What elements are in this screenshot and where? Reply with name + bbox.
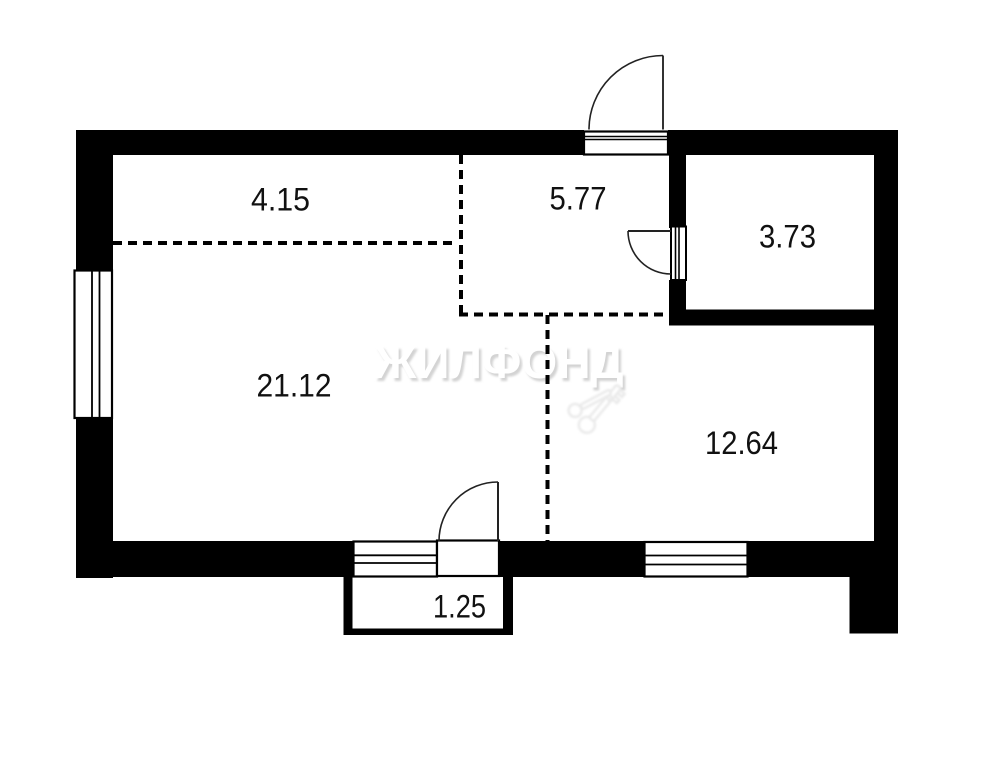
svg-text:21.12: 21.12 xyxy=(257,368,332,404)
svg-text:12.64: 12.64 xyxy=(705,425,778,461)
svg-text:ЖИЛФОНД: ЖИЛФОНД xyxy=(373,336,623,388)
svg-text:3.73: 3.73 xyxy=(759,219,816,255)
svg-text:5.77: 5.77 xyxy=(550,181,607,217)
svg-text:1.25: 1.25 xyxy=(433,589,486,625)
svg-text:4.15: 4.15 xyxy=(251,182,310,218)
